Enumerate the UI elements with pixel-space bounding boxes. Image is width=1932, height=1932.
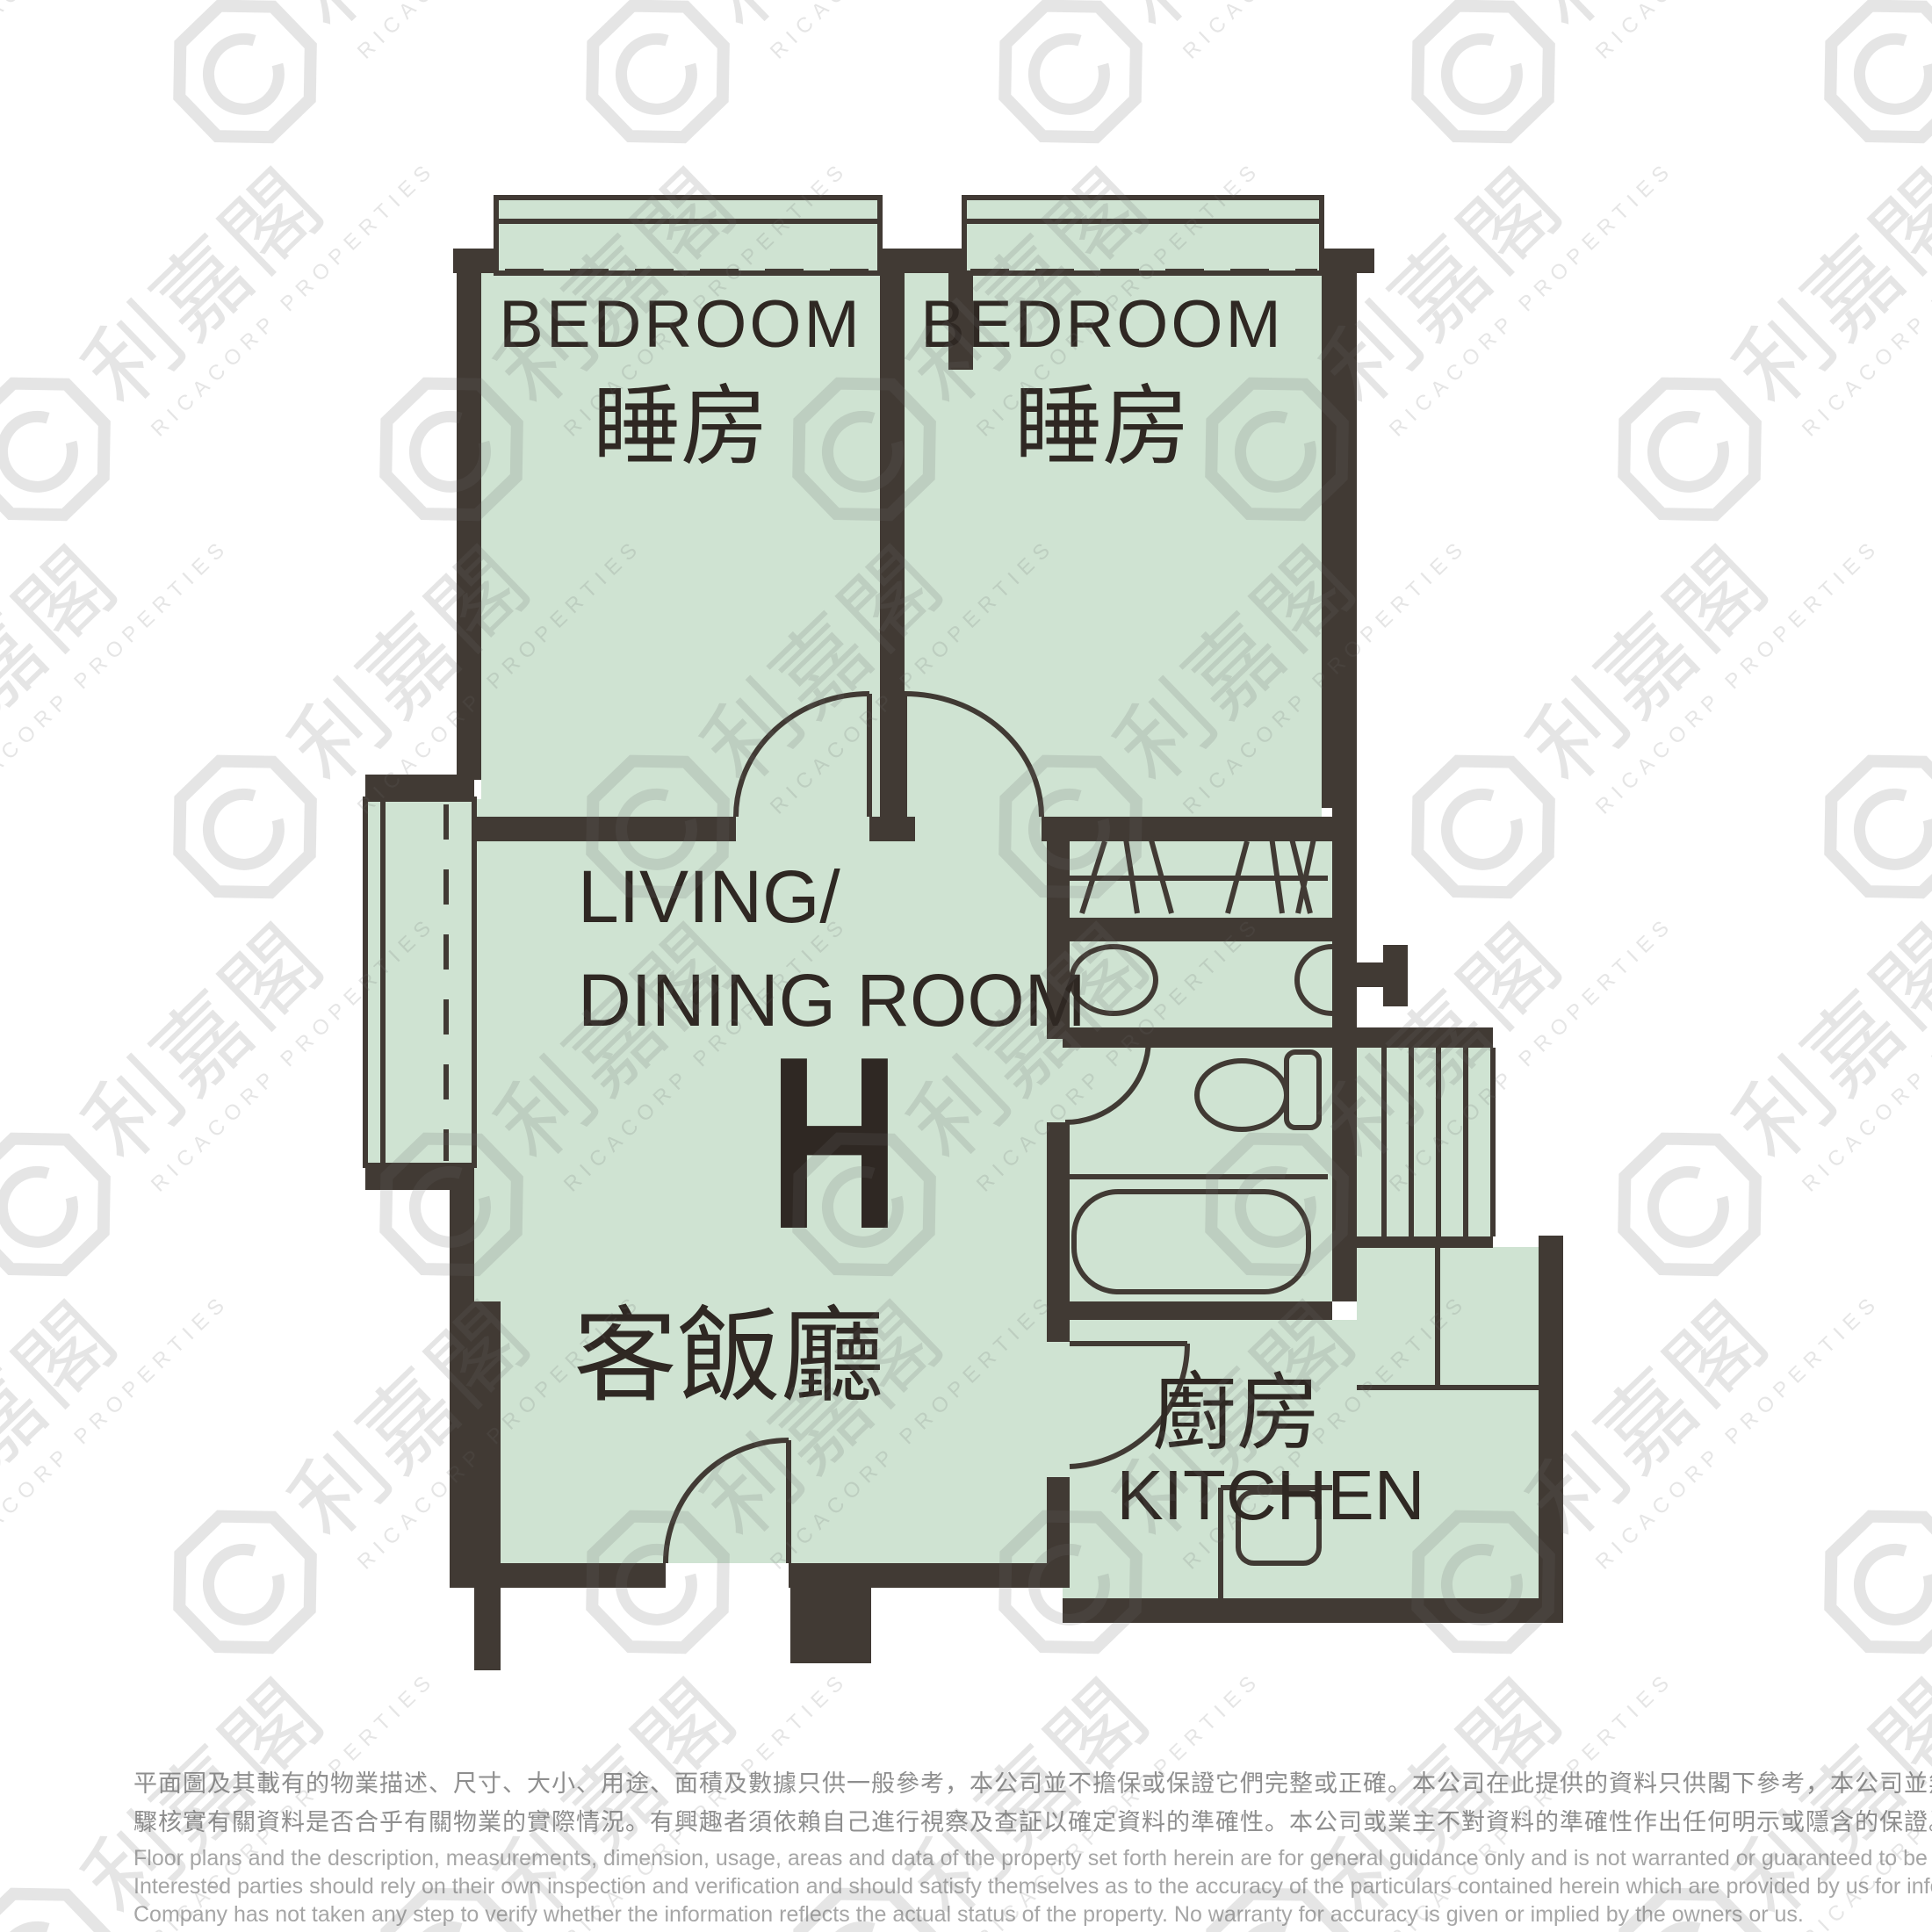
wall-entrance-stub <box>790 1588 871 1663</box>
wall-bottom-right <box>789 1563 1070 1588</box>
floor-plan-svg: 利嘉閣 RICACORP PROPERTIES <box>0 0 1932 1932</box>
wall-bath-block-left-3 <box>1047 1477 1070 1588</box>
wall-between-bays <box>880 249 964 273</box>
floor-plan-page: 利嘉閣 RICACORP PROPERTIES <box>0 0 1932 1932</box>
ricacorp-watermark <box>978 0 1472 175</box>
ricacorp-watermark <box>1391 0 1885 175</box>
wall-platform-bottom <box>1357 1236 1493 1248</box>
ricacorp-watermark <box>1804 0 1932 175</box>
wall-center-door-cap <box>869 817 915 841</box>
pipe-duct-bar-icon <box>1383 945 1408 1006</box>
bedroom-2-label-zh: 睡房 <box>1014 378 1190 476</box>
wall-bottom-left <box>474 1563 666 1588</box>
ricacorp-watermark <box>1804 1201 1932 1685</box>
pipe-duct-stem-icon <box>1357 962 1385 987</box>
ricacorp-watermark <box>566 0 1059 175</box>
ricacorp-watermark <box>1391 446 1885 930</box>
ricacorp-watermark <box>1804 446 1932 930</box>
wall-bedrooms-bottom-right <box>1042 817 1332 841</box>
toilet-bowl-icon <box>1197 1061 1287 1129</box>
ricacorp-watermark <box>153 0 646 175</box>
